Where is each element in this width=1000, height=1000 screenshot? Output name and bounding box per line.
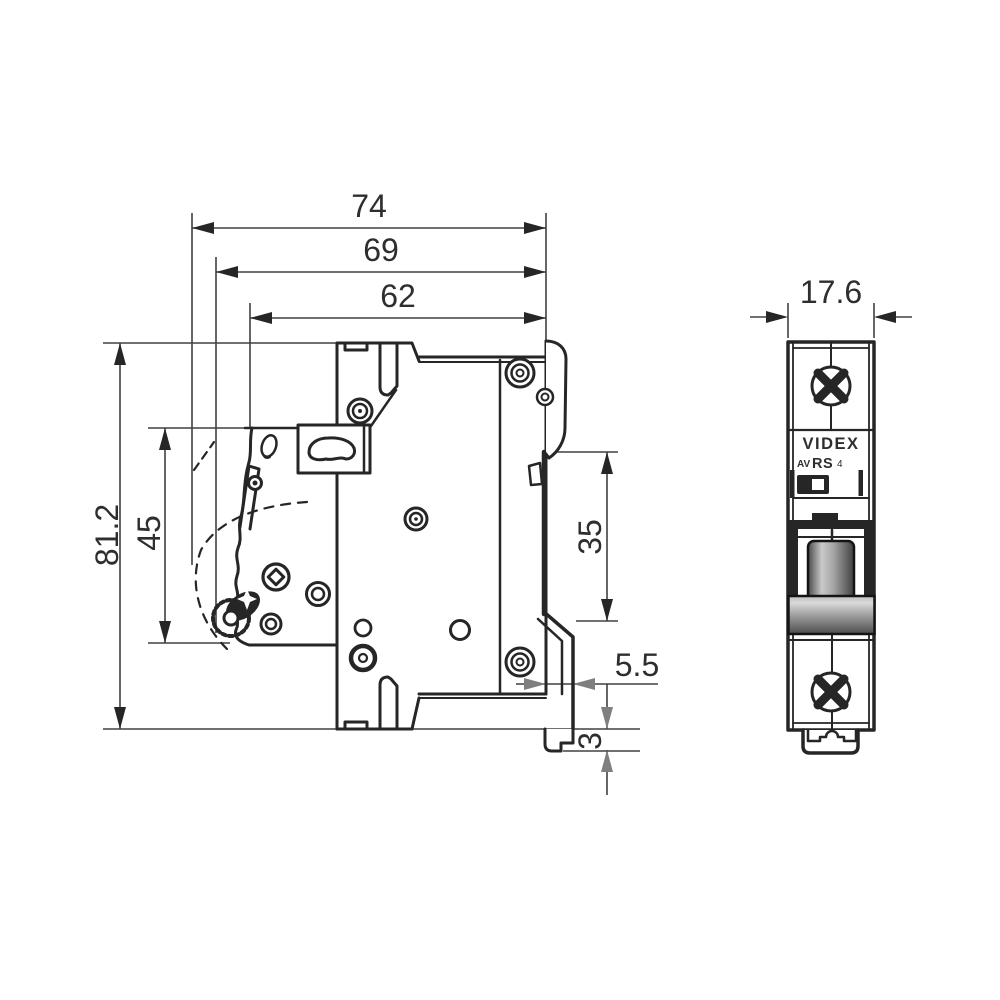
dim-62-label: 62 <box>380 278 416 314</box>
series-prefix-label: AV <box>797 459 810 470</box>
side-view: 74 69 62 81.2 45 <box>89 188 659 795</box>
dim-35-label: 35 <box>572 519 608 555</box>
dim-81-2-label: 81.2 <box>89 504 125 566</box>
dimension-74: 74 <box>192 188 546 234</box>
toggle-rocker-bar[interactable] <box>789 596 875 634</box>
mechanism-screw <box>307 583 330 606</box>
mechanism-hole <box>259 433 279 458</box>
rail-hole <box>537 389 553 405</box>
dim-74-label: 74 <box>351 188 387 224</box>
dim-45-label: 45 <box>131 515 167 551</box>
recess-wall-right <box>864 529 874 601</box>
rivet-icon <box>351 646 375 670</box>
side-extension-lines <box>103 213 640 751</box>
breaker-dimension-drawing: 74 69 62 81.2 45 <box>0 0 1000 1000</box>
pin-hole <box>355 620 371 636</box>
rail-tooth <box>529 463 542 485</box>
dimension-3: 3 <box>572 684 613 795</box>
terminal-screw-top <box>812 367 850 405</box>
case-screw-bottom-right <box>506 648 534 676</box>
case-screw-top-right <box>506 359 534 387</box>
dimension-17-6: 17.6 <box>750 274 912 338</box>
technical-drawing-canvas: 74 69 62 81.2 45 <box>0 0 1000 1000</box>
dim-3-label: 3 <box>572 732 608 750</box>
cover-tab-left <box>790 470 795 498</box>
top-slot <box>380 343 397 395</box>
cover-tab-right <box>859 470 864 496</box>
brand-logo: VIDEX <box>802 435 859 453</box>
mechanism-screw-small <box>261 614 281 634</box>
rail-clip-inner <box>538 619 562 694</box>
gear-icon <box>213 585 265 636</box>
series-size-label: 4 <box>837 459 843 470</box>
lever-pivot <box>249 477 262 490</box>
case-hole <box>451 621 470 640</box>
toggle-lever-side <box>309 438 355 460</box>
indicator-flag <box>812 479 824 490</box>
front-view: 17.6 VIDEX AV RS 4 <box>750 274 912 753</box>
bottom-slot <box>380 677 397 729</box>
dim-17-6-label: 17.6 <box>800 274 862 310</box>
series-label: RS <box>812 456 833 472</box>
rail-clip-foot <box>545 729 573 751</box>
dim-69-label: 69 <box>363 232 399 268</box>
dimension-62: 62 <box>250 278 546 324</box>
case-screw-top-left <box>348 399 372 423</box>
side-mechanism <box>194 425 470 670</box>
dimension-35: 35 <box>572 452 613 621</box>
dim-5-5-label: 5.5 <box>615 647 659 683</box>
bottom-clip-tab <box>803 730 858 753</box>
dimension-5-5: 5.5 <box>516 647 659 690</box>
side-din-rail <box>529 341 573 751</box>
recess-wall-left <box>787 529 798 597</box>
case-screw-center <box>405 508 427 530</box>
square-socket-screw <box>263 564 289 590</box>
dimension-81-2: 81.2 <box>89 343 126 729</box>
lever-travel-dash <box>194 442 214 470</box>
dimension-45: 45 <box>131 428 171 643</box>
terminal-screw-bottom <box>812 673 850 711</box>
toggle-switch[interactable] <box>808 541 854 602</box>
dimension-69: 69 <box>216 232 546 278</box>
